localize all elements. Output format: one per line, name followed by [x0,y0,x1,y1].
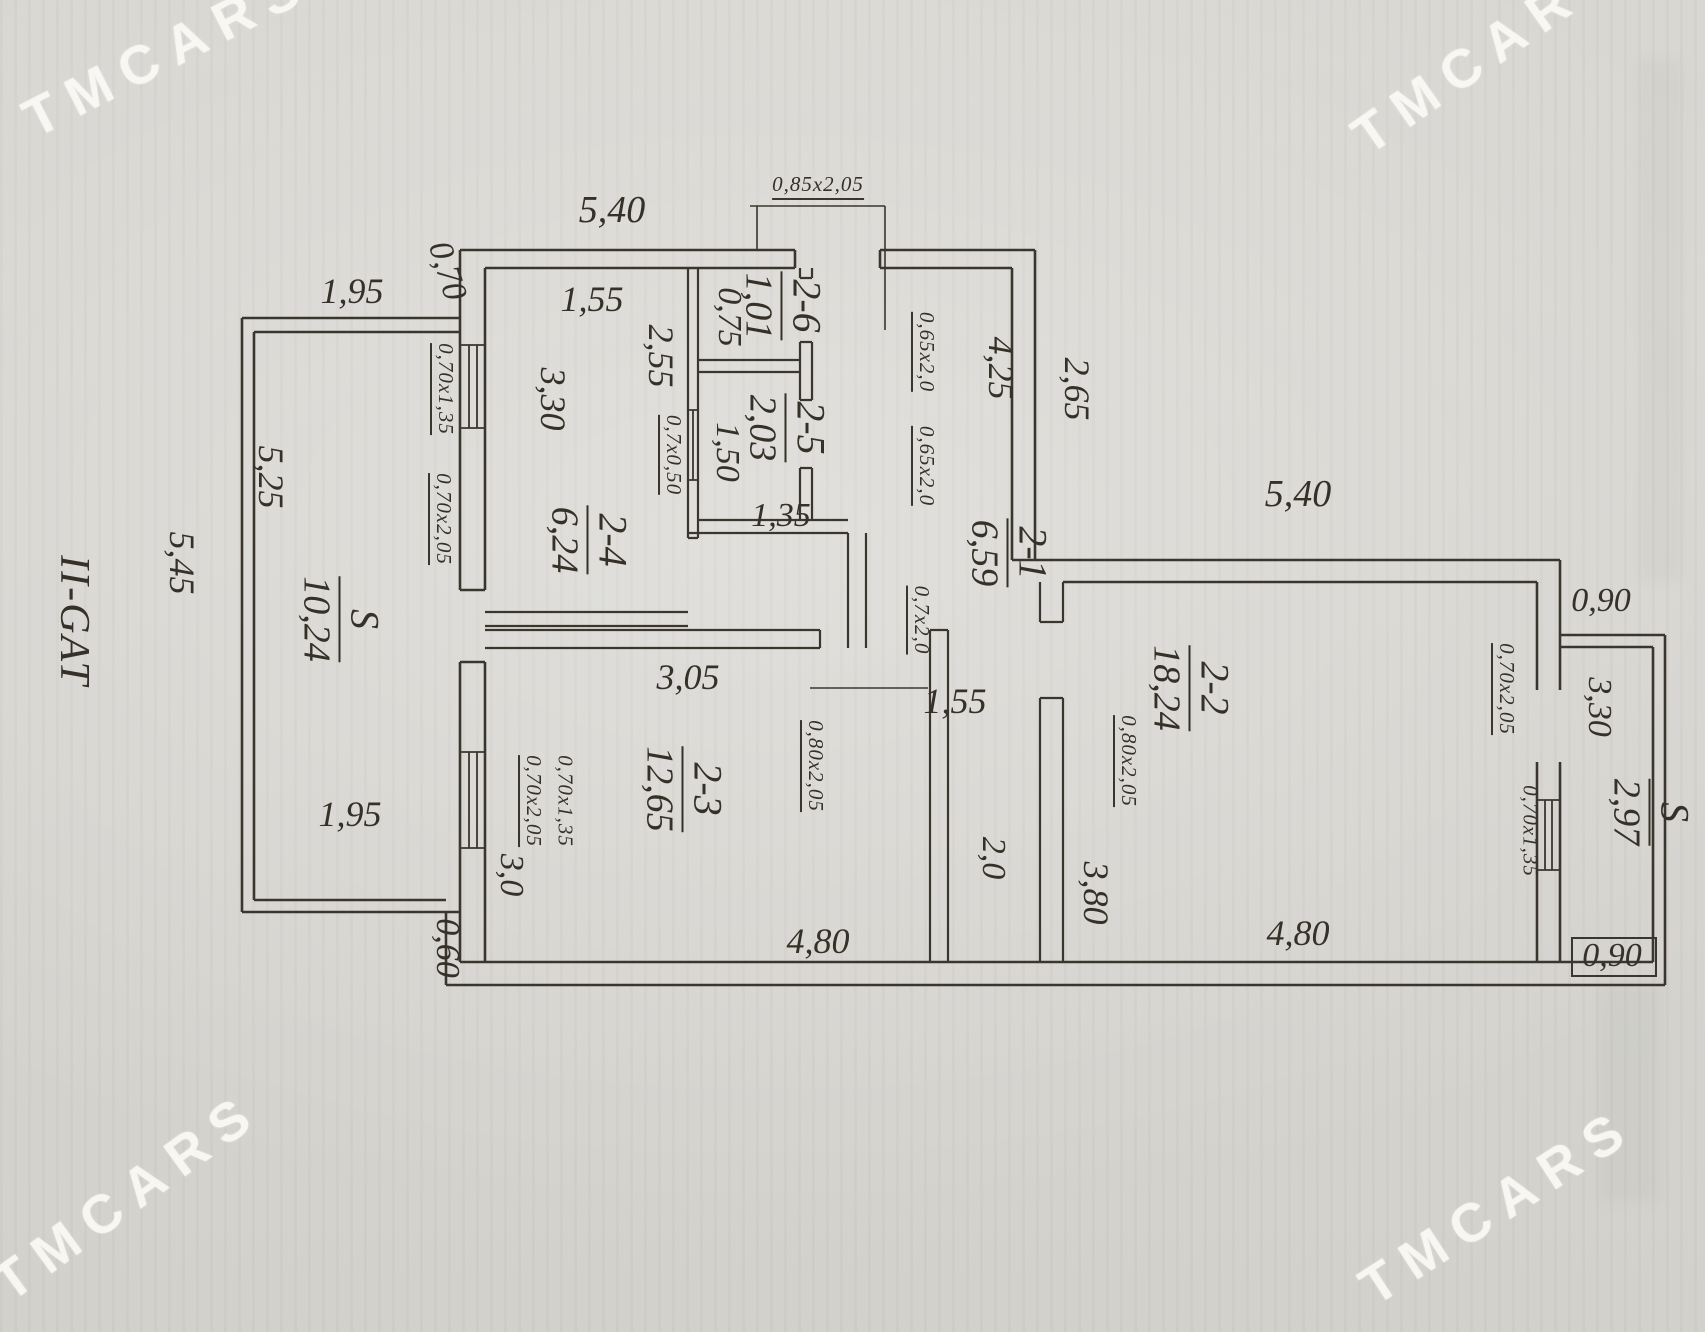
room-label-2-1: 2-16,59 [966,518,1053,587]
room-area: 12,65 [641,746,682,832]
window-symbols [460,345,1560,870]
scanned-paper-background: 0,85x2,05 5,40 1,95 1,55 1,35 3,05 1,55 … [0,0,1705,1332]
room-label-2-6: 2-61,01 [740,271,827,340]
room-number: 2-5 [785,393,831,462]
dim-hall-height: 4,25 [983,337,1019,400]
annex2-door-size-label: 0,70x2,05 [1491,643,1517,735]
dim-room24-top: 1,55 [561,281,624,317]
room-label-annex-s: S10,24 [298,576,385,662]
dim-annex-outer: 5,45 [164,532,200,595]
dim-room24-height: 3,30 [535,368,571,431]
room-number: 2-6 [781,271,827,340]
dim-room23-left: 3,0 [494,854,528,897]
dim-annex2-bottom: 0,90 [1582,939,1642,973]
room-area: 6,59 [966,520,1007,587]
room-area: 2,03 [744,395,785,462]
room-label-annex2-s: S2,97 [1608,779,1695,846]
room-number: S [339,576,385,662]
dim-top-width: 5,40 [579,191,646,229]
floor-title: II-GAT [53,555,95,687]
dim-annex2-height: 3,30 [1582,677,1616,737]
annex2-window-size-label: 0,70x1,35 [1520,785,1541,877]
room-label-2-3: 2-312,65 [641,746,728,832]
dim-room23-bottom: 4,80 [787,923,850,959]
room-number: 2-1 [1007,518,1053,587]
dim-room22-top: 5,40 [1265,475,1332,513]
room-area: 6,24 [546,507,587,574]
room25-pass-size-label: 0,7x0,50 [658,415,684,495]
dim-annex-top: 1,95 [321,273,384,309]
door26-size-label: 0,65x2,0 [911,312,937,392]
room23-window-a-label: 0,70x2,05 [518,755,544,847]
dim-corridor-width: 1,55 [924,683,987,719]
room-area: 2,97 [1608,779,1649,846]
door25-size-label: 0,65x2,0 [911,426,937,506]
dim-corridor-length: 2,0 [976,837,1010,880]
room-number: 2-2 [1189,645,1235,731]
dim-room22-left: 3,80 [1078,862,1114,925]
left-window-size-label: 0,70x1,35 [430,343,456,435]
dim-annex2-top: 0,90 [1571,584,1631,618]
hall-door-size-label: 0,7x2,0 [906,586,932,655]
room23-window-b-label: 0,70x1,35 [555,755,576,847]
room-label-2-4: 2-46,24 [546,505,633,574]
room-number: S [1649,779,1695,846]
room-number: 2-4 [587,505,633,574]
dim-offset-bottom: 0,60 [430,918,464,978]
room-label-2-5: 2-52,03 [744,393,831,462]
dim-room25-bottom: 1,35 [751,499,811,533]
dim-room24-width: 2,55 [643,325,679,388]
dim-right-upper-wall: 2,65 [1059,358,1095,421]
entry-door-size-label: 0,85x2,05 [772,174,864,200]
room-area: 1,01 [740,273,781,340]
dim-annex-inner: 5,25 [253,446,289,509]
dim-annex-bottom: 1,95 [319,796,382,832]
room22-door-size-label: 0,80x2,05 [1113,715,1139,807]
room-area: 10,24 [298,576,339,662]
room-area: 18,24 [1148,645,1189,731]
dim-room25-width: 1,50 [710,422,744,482]
left-door-size-label: 0,70x2,05 [428,473,454,565]
room-number: 2-3 [682,746,728,832]
room23-door-size-label: 0,80x2,05 [800,720,826,812]
dim-room22-bottom: 4,80 [1267,915,1330,951]
dim-room23-top: 3,05 [657,659,720,695]
room-label-2-2: 2-218,24 [1148,645,1235,731]
